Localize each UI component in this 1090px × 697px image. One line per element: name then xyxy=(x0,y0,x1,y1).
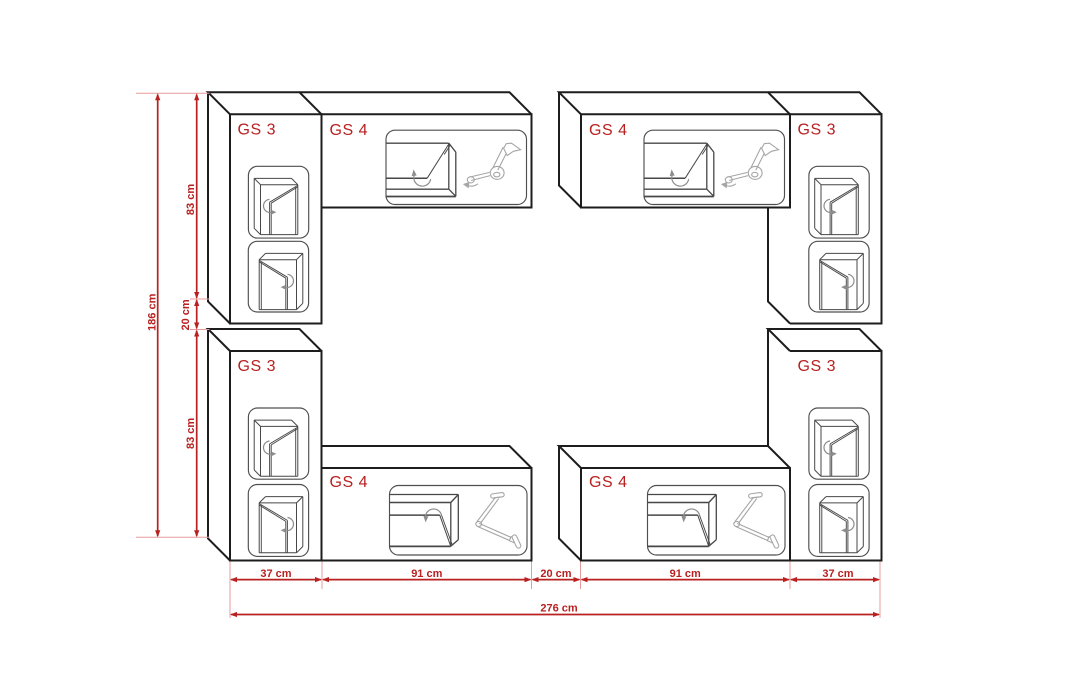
svg-text:20 cm: 20 cm xyxy=(180,299,192,330)
svg-text:GS 4: GS 4 xyxy=(330,122,368,139)
svg-text:GS 4: GS 4 xyxy=(330,474,368,491)
svg-text:83 cm: 83 cm xyxy=(185,184,197,215)
svg-text:37 cm: 37 cm xyxy=(260,568,291,580)
svg-text:GS 3: GS 3 xyxy=(238,358,276,375)
svg-text:91 cm: 91 cm xyxy=(670,568,701,580)
svg-text:186 cm: 186 cm xyxy=(146,293,158,331)
svg-text:GS 3: GS 3 xyxy=(798,121,836,138)
svg-text:GS 3: GS 3 xyxy=(798,358,836,375)
svg-text:GS 4: GS 4 xyxy=(589,122,627,139)
svg-text:91 cm: 91 cm xyxy=(411,568,442,580)
svg-text:GS 4: GS 4 xyxy=(589,474,627,491)
svg-text:20 cm: 20 cm xyxy=(540,568,571,580)
svg-text:276 cm: 276 cm xyxy=(540,602,578,614)
svg-text:83 cm: 83 cm xyxy=(185,418,197,449)
svg-text:37 cm: 37 cm xyxy=(822,568,853,580)
svg-text:GS 3: GS 3 xyxy=(238,121,276,138)
